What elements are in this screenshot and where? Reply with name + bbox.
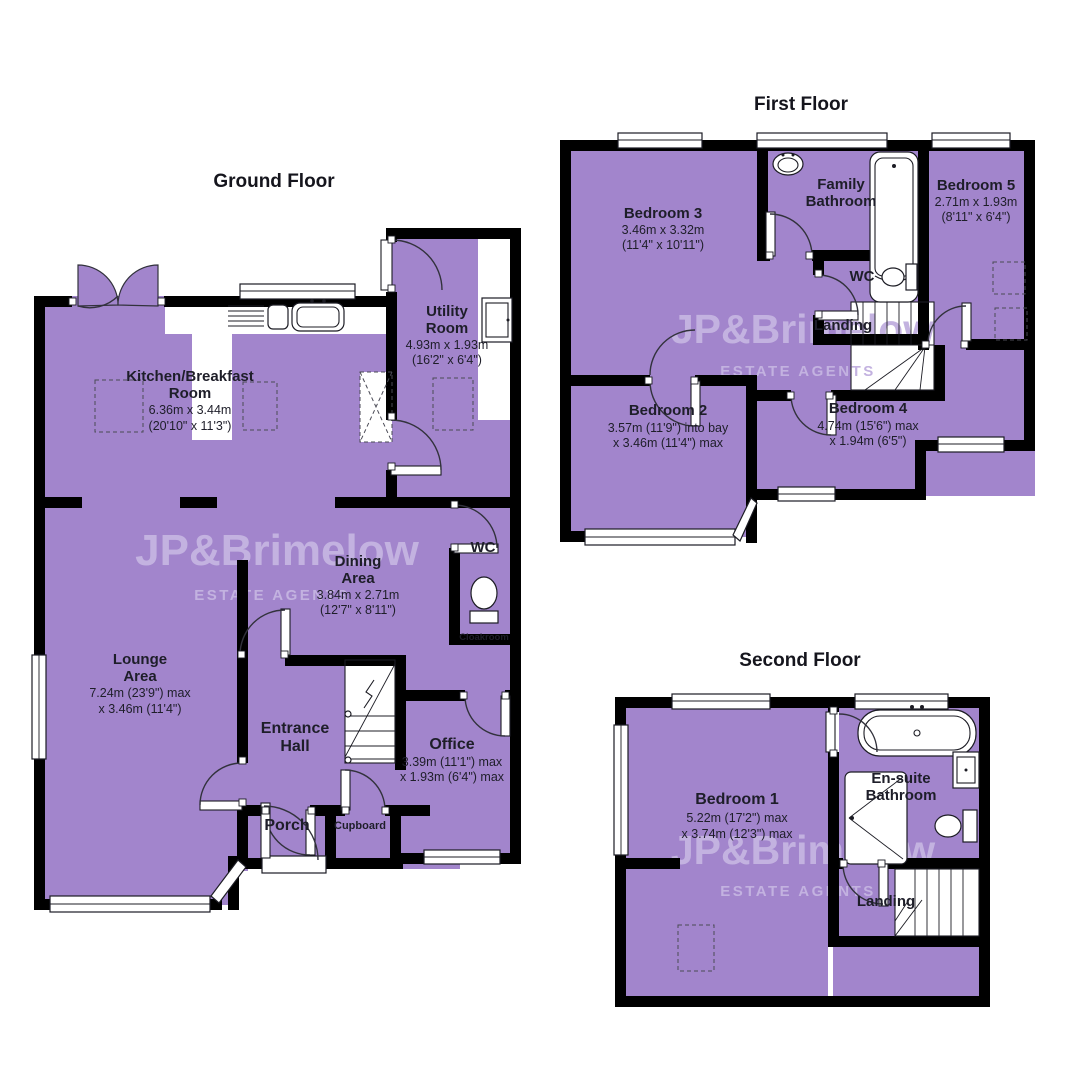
svg-text:(16'2" x 6'4"): (16'2" x 6'4") — [412, 353, 482, 367]
svg-text:6.36m x 3.44m: 6.36m x 3.44m — [149, 403, 232, 417]
second-floor-title: Second Floor — [739, 650, 861, 671]
svg-text:(12'7" x 8'11"): (12'7" x 8'11") — [320, 603, 396, 617]
svg-text:x 3.74m (12'3") max: x 3.74m (12'3") max — [681, 827, 793, 841]
svg-text:Bathroom: Bathroom — [806, 193, 877, 210]
svg-text:Bedroom 3: Bedroom 3 — [624, 205, 702, 222]
svg-text:3.39m (11'1") max: 3.39m (11'1") max — [402, 755, 503, 769]
svg-text:Room: Room — [426, 320, 469, 337]
svg-text:Utility: Utility — [426, 303, 468, 320]
ground-wc-toilet — [470, 577, 498, 623]
bedroom5-label: Bedroom 5 2.71m x 1.93m (8'11" x 6'4") — [935, 177, 1018, 224]
ground-wc-label: WC — [471, 539, 496, 556]
svg-text:(8'11" x 6'4"): (8'11" x 6'4") — [941, 210, 1010, 224]
svg-text:Bedroom 1: Bedroom 1 — [695, 791, 779, 808]
svg-text:4.93m x 1.93m: 4.93m x 1.93m — [406, 338, 489, 352]
bedroom1-label: Bedroom 1 5.22m (17'2") max x 3.74m (12'… — [681, 791, 793, 841]
first-floor-plan: JP&Brimelow ESTATE AGENTS — [560, 94, 1035, 545]
svg-text:Area: Area — [123, 668, 157, 685]
cupboard-label: Cupboard — [334, 820, 386, 832]
svg-text:7.24m (23'9") max: 7.24m (23'9") max — [89, 686, 191, 700]
bedroom4-label: Bedroom 4 4.74m (15'6") max x 1.94m (6'5… — [817, 400, 919, 448]
svg-text:Hall: Hall — [280, 738, 309, 755]
svg-text:(11'4" x 10'11"): (11'4" x 10'11") — [622, 238, 704, 252]
first-floor-title: First Floor — [754, 94, 849, 115]
svg-text:Family: Family — [817, 176, 865, 193]
second-floor-plan: JP&Brimelow ESTATE AGENTS — [614, 650, 990, 1007]
ensuite-label: En-suite Bathroom — [866, 770, 937, 804]
first-landing-label: Landing — [814, 317, 872, 334]
ground-french-doors — [78, 265, 158, 306]
first-wc-label: WC — [850, 268, 875, 285]
svg-text:Office: Office — [429, 736, 474, 753]
svg-text:Entrance: Entrance — [261, 720, 330, 737]
porch-label: Porch — [264, 817, 309, 834]
svg-text:2.71m x 1.93m: 2.71m x 1.93m — [935, 195, 1018, 209]
svg-text:x 3.46m (11'4") max: x 3.46m (11'4") max — [613, 436, 724, 450]
utility-sink — [482, 298, 512, 342]
svg-text:4.74m (15'6") max: 4.74m (15'6") max — [817, 419, 919, 433]
svg-text:x 1.94m (6'5"): x 1.94m (6'5") — [830, 434, 907, 448]
ground-floor-title: Ground Floor — [213, 171, 335, 192]
svg-text:En-suite: En-suite — [871, 770, 930, 787]
svg-text:Dining: Dining — [335, 553, 382, 570]
ensuite-sink — [953, 752, 979, 788]
svg-text:3.84m x 2.71m: 3.84m x 2.71m — [317, 588, 400, 602]
floorplan-canvas: JP&Brimelow ESTATE AGENTS — [0, 0, 1080, 1080]
svg-text:Lounge: Lounge — [113, 651, 167, 668]
svg-text:Room: Room — [169, 385, 212, 402]
svg-text:x 1.93m (6'4") max: x 1.93m (6'4") max — [400, 770, 505, 784]
svg-text:Bedroom 2: Bedroom 2 — [629, 402, 707, 419]
svg-text:5.22m (17'2") max: 5.22m (17'2") max — [686, 811, 788, 825]
svg-text:Bedroom 5: Bedroom 5 — [937, 177, 1015, 194]
svg-text:(20'10" x 11'3"): (20'10" x 11'3") — [149, 419, 232, 433]
svg-text:3.57m (11'9") into bay: 3.57m (11'9") into bay — [608, 421, 729, 435]
ensuite-bath — [858, 705, 976, 756]
second-landing-label: Landing — [857, 893, 915, 910]
svg-text:ESTATE AGENTS: ESTATE AGENTS — [720, 883, 876, 900]
svg-text:Bathroom: Bathroom — [866, 787, 937, 804]
svg-text:Area: Area — [341, 570, 375, 587]
bathroom-basin — [773, 153, 803, 175]
cloakroom-label: Cloakroom — [459, 632, 509, 643]
floorplan-svg: JP&Brimelow ESTATE AGENTS — [0, 0, 1080, 1080]
svg-text:3.46m x 3.32m: 3.46m x 3.32m — [622, 223, 705, 237]
svg-text:Bedroom 4: Bedroom 4 — [829, 400, 908, 417]
bedroom3-label: Bedroom 3 3.46m x 3.32m (11'4" x 10'11") — [622, 205, 705, 252]
svg-text:Kitchen/Breakfast: Kitchen/Breakfast — [126, 368, 254, 385]
ground-floor-plan: JP&Brimelow ESTATE AGENTS — [32, 171, 521, 912]
svg-text:x 3.46m (11'4"): x 3.46m (11'4") — [98, 702, 181, 716]
